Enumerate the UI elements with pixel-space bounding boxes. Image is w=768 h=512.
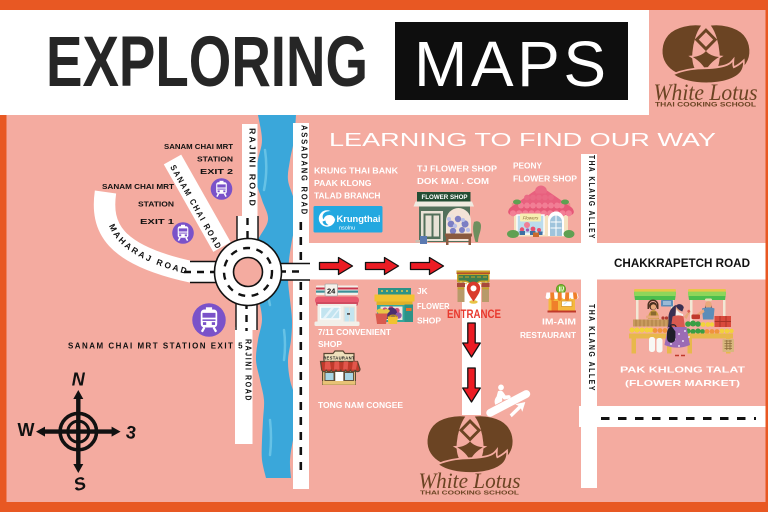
svg-text:THAI COOKING SCHOOL: THAI COOKING SCHOOL	[420, 491, 520, 497]
svg-text:IM-AIM: IM-AIM	[542, 318, 576, 327]
svg-text:SANAM CHAI MRT: SANAM CHAI MRT	[164, 142, 233, 151]
svg-text:RAJINI ROAD: RAJINI ROAD	[244, 339, 254, 402]
svg-text:PEONY: PEONY	[513, 162, 543, 171]
svg-text:EXIT 1: EXIT 1	[140, 217, 174, 226]
svg-text:EXPLORING: EXPLORING	[46, 23, 368, 102]
svg-text:RESTAURANT: RESTAURANT	[323, 356, 355, 361]
svg-text:SHOP: SHOP	[318, 340, 343, 349]
svg-text:FLOWER SHOP: FLOWER SHOP	[422, 195, 468, 201]
svg-text:RESTAURANT: RESTAURANT	[520, 331, 576, 340]
svg-text:Krungthai: Krungthai	[337, 214, 381, 225]
svg-text:TJ FLOWER SHOP: TJ FLOWER SHOP	[417, 165, 498, 174]
svg-text:ASSADANG ROAD: ASSADANG ROAD	[300, 125, 310, 216]
svg-text:PAK KHLONG TALAT: PAK KHLONG TALAT	[620, 365, 746, 375]
svg-text:STATION: STATION	[197, 155, 233, 164]
svg-text:White Lotus: White Lotus	[654, 80, 758, 105]
svg-text:MAPS: MAPS	[414, 28, 606, 100]
svg-text:JK: JK	[417, 287, 428, 296]
svg-text:KRUNG THAI BANK: KRUNG THAI BANK	[314, 167, 398, 176]
svg-text:SANAM CHAI MRT: SANAM CHAI MRT	[102, 182, 174, 191]
svg-text:RAJINI ROAD: RAJINI ROAD	[248, 128, 258, 208]
svg-text:nsolnu: nsolnu	[339, 226, 355, 232]
svg-text:FLOWER SHOP: FLOWER SHOP	[513, 175, 578, 184]
svg-text:PAAK KLONG: PAAK KLONG	[314, 179, 372, 188]
svg-text:SHOP: SHOP	[417, 317, 442, 326]
svg-text:FLOWER: FLOWER	[417, 302, 450, 311]
svg-text:THAI COOKING SCHOOL: THAI COOKING SCHOOL	[655, 103, 756, 109]
svg-text:W: W	[18, 420, 35, 440]
svg-text:TALAD BRANCH: TALAD BRANCH	[314, 192, 381, 201]
svg-text:TONG NAM CONGEE: TONG NAM CONGEE	[318, 401, 404, 410]
svg-text:7/11 CONVENIENT: 7/11 CONVENIENT	[318, 328, 391, 337]
svg-text:CHAKKRAPETCH ROAD: CHAKKRAPETCH ROAD	[614, 258, 750, 270]
svg-text:White Lotus: White Lotus	[419, 468, 521, 493]
svg-text:DOK MAI . COM: DOK MAI . COM	[417, 177, 489, 186]
svg-text:Flowers: Flowers	[523, 216, 540, 221]
svg-text:THA KLANG ALLEY: THA KLANG ALLEY	[587, 155, 597, 240]
svg-text:STATION: STATION	[138, 200, 174, 209]
svg-text:EXIT 2: EXIT 2	[200, 167, 233, 176]
svg-text:(FLOWER MARKET): (FLOWER MARKET)	[625, 378, 740, 388]
svg-text:THA KLANG ALLEY: THA KLANG ALLEY	[587, 304, 597, 392]
svg-text:ENTRANCE: ENTRANCE	[447, 309, 501, 321]
svg-text:N: N	[72, 370, 86, 390]
svg-text:SANAM CHAI MRT STATION EXIT 5: SANAM CHAI MRT STATION EXIT 5	[68, 342, 244, 351]
svg-text:LEARNING TO FIND OUR WAY: LEARNING TO FIND OUR WAY	[329, 130, 716, 150]
svg-text:24: 24	[327, 286, 336, 295]
